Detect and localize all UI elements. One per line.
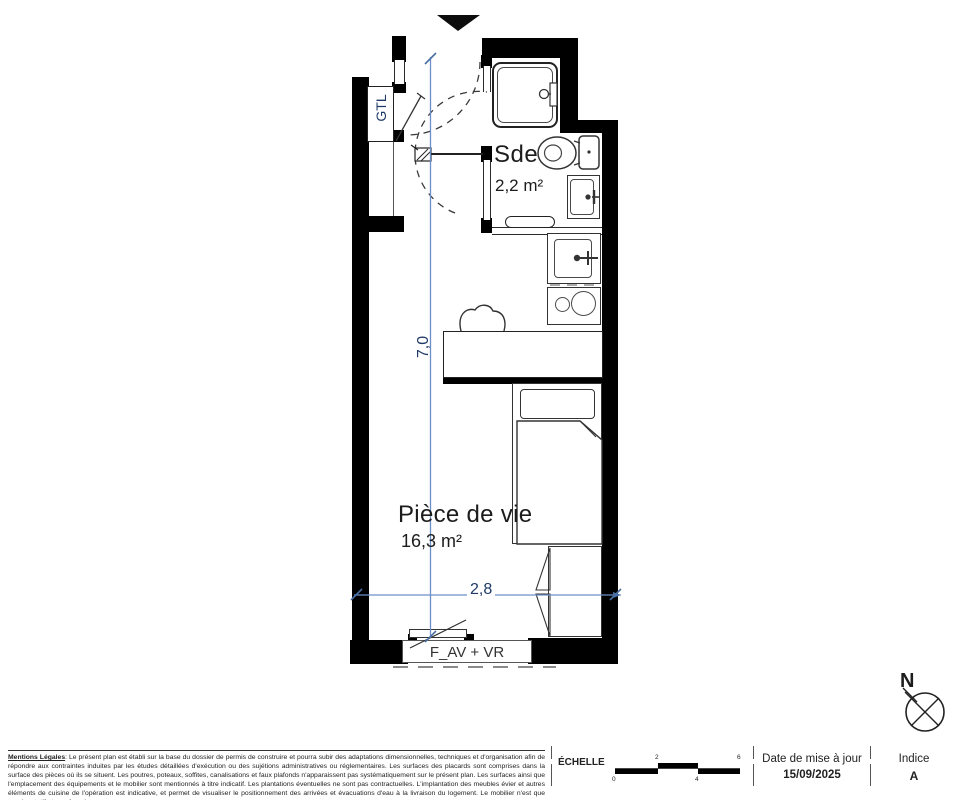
kitchen-sink-bowl <box>554 239 592 278</box>
right-wall <box>602 120 618 663</box>
index-label: Indice <box>872 753 956 765</box>
toilet <box>538 136 599 169</box>
burner-large <box>571 291 596 316</box>
washbasin-bowl <box>570 179 594 215</box>
footer-divider-2b <box>753 764 754 786</box>
dimension-vertical-value: 7,0 <box>415 336 433 358</box>
entry-thin-wall <box>394 60 405 84</box>
sde-left-wall-upper <box>483 66 491 92</box>
window-casement <box>409 629 467 638</box>
scale-tick-4: 4 <box>695 776 699 783</box>
footer-divider-2a <box>753 746 754 759</box>
left-wall <box>352 77 369 663</box>
index-value: A <box>872 769 956 783</box>
sde-sliding-door <box>505 216 555 228</box>
scale-label: ÉCHELLE <box>558 757 605 768</box>
room-name-piece-de-vie: Pièce de vie <box>398 501 532 529</box>
entry-door-swing-arc <box>407 62 480 135</box>
footer-divider-1a <box>551 746 552 759</box>
legal-notice-label: Mentions Légales <box>8 754 65 761</box>
desk <box>443 331 603 378</box>
wardrobe <box>548 546 602 637</box>
legal-notice-text: : Le présent plan est établi sur la base… <box>8 754 545 800</box>
footer-divider-3a <box>870 746 871 759</box>
gtl-label: GTL <box>373 93 389 123</box>
room-area-piece-de-vie: 16,3 m² <box>401 531 462 552</box>
entry-nook-wall <box>352 216 404 232</box>
legal-notice: Mentions Légales: Le présent plan est ét… <box>8 753 545 800</box>
scale-tick-0: 0 <box>612 776 616 783</box>
bottom-left-wall <box>350 640 408 664</box>
bed-pillow <box>520 389 595 419</box>
sde-wall-post-bottom <box>481 218 492 233</box>
sde-door-leaf <box>411 145 483 161</box>
gtl-nook-face-line <box>393 142 394 216</box>
upper-right-wall <box>560 40 578 132</box>
room-area-sde: 2,2 m² <box>495 176 543 196</box>
entry-left-wall-top <box>392 36 406 62</box>
sde-door-swing-arc <box>415 91 487 213</box>
scale-bar-segment-1 <box>615 769 658 774</box>
footer-divider-3b <box>870 764 871 786</box>
footer-divider-1b <box>551 764 552 786</box>
sde-left-wall-lower <box>483 160 491 220</box>
window-label: F_AV + VR <box>402 644 532 661</box>
scale-tick-2: 2 <box>655 754 659 761</box>
update-date-label: Date de mise à jour <box>756 753 868 765</box>
scale-tick-6: 6 <box>737 754 741 761</box>
scale-bar-segment-2 <box>658 763 698 768</box>
floor-plan-page: GTL F_AV + VR <box>0 0 958 800</box>
bottom-right-wall <box>528 638 618 664</box>
plan-linework <box>0 0 958 800</box>
chair <box>460 305 505 331</box>
room-name-sde: Sde <box>494 141 538 169</box>
north-compass-icon <box>903 688 944 731</box>
scale-bar-segment-3 <box>698 769 740 774</box>
dimension-horizontal-value: 2,8 <box>467 581 495 599</box>
footer-top-rule <box>8 750 545 751</box>
entrance-arrow-icon <box>437 15 480 31</box>
shower-tray-inner <box>497 67 553 123</box>
update-date-value: 15/09/2025 <box>756 769 868 781</box>
burner-small <box>555 297 570 312</box>
compass-north-label: N <box>900 670 914 693</box>
